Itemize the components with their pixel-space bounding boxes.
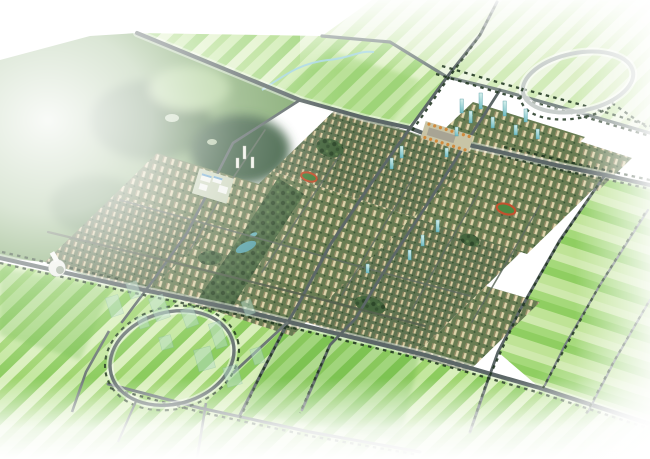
glass-tower <box>536 129 539 139</box>
white-haze-overlay <box>0 0 650 459</box>
glass-tower <box>524 109 527 122</box>
glass-tower <box>491 117 494 128</box>
glass-tower <box>514 125 517 135</box>
glass-tower <box>503 101 506 116</box>
masterplan-scene: Pale striped farmland parcels north of t… <box>0 0 650 459</box>
masterplan-rendering: Pale striped farmland parcels north of t… <box>0 0 650 459</box>
haze-bottom-right <box>390 200 650 459</box>
